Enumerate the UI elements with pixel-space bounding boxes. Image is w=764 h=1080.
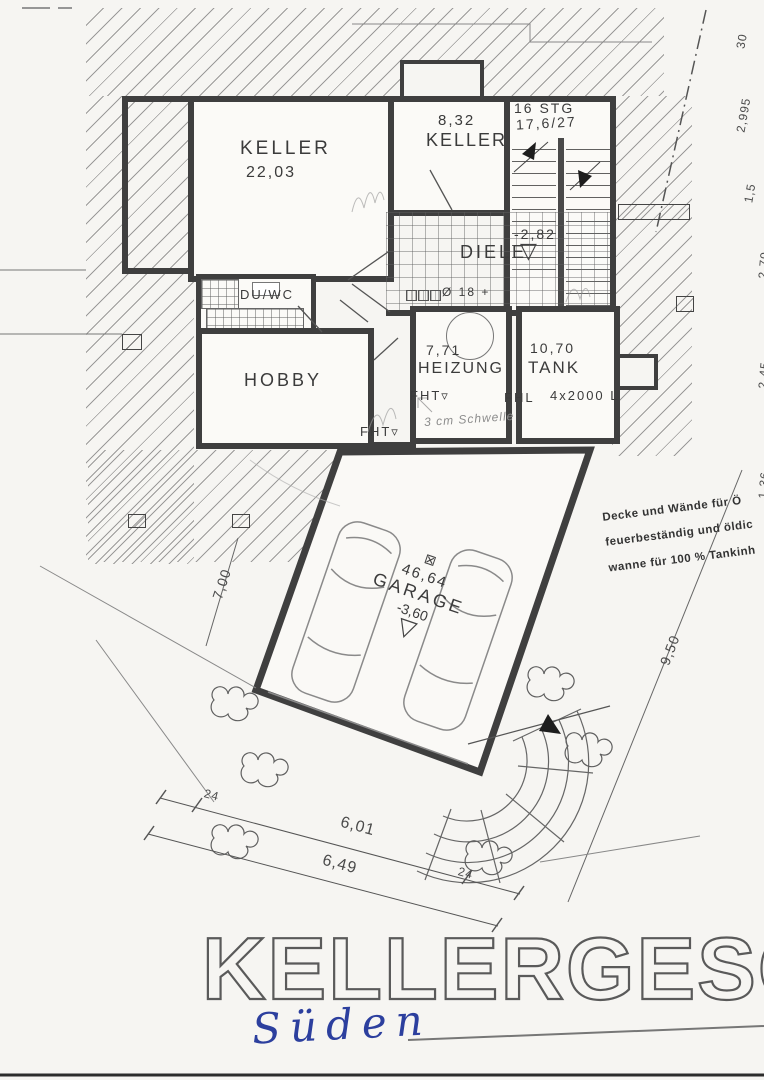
pier-3 [232,514,250,528]
edge-dim-270: 2,70 [756,251,764,279]
dim-24-right: 24 [456,864,474,881]
earth-hatch-right [612,96,692,456]
drive-line-2 [96,640,214,802]
heizung-name: HEIZUNG [418,360,504,378]
tank-name: TANK [528,358,580,378]
fht-label-heizung: FHT▿ [410,388,450,404]
fht-label-hobby: FHT▿ [360,424,400,440]
dim-601: 6,01 [338,814,377,840]
floorplan-scan: KELLER 22,03 8,32 KELLER 16 STG 17,6/27 … [0,0,764,1080]
duct-boxes [406,287,442,305]
wall-stub [618,204,690,220]
wall-hall-south [370,442,416,449]
fht-text: FHT [360,424,391,439]
fht-text: FHT [410,388,441,403]
shrub-sketches [211,667,612,875]
down-arrow-icon: ▿ [391,424,400,439]
shower-strip-tiles [206,308,304,330]
dim-700: 7,00 [209,567,234,602]
edge-dim-30: 30 [733,32,749,50]
earth-hatch-below-left [88,450,340,562]
room-outer-notch [122,96,196,274]
keller2-area: 8,32 [438,112,475,129]
stairs-riser-tread: 17,6/27 [516,113,577,132]
garage-door-line [268,692,468,764]
heizung-area: 7,71 [426,342,461,358]
down-arrow-icon: ▿ [441,388,450,403]
edge-dim-136: 1,36 [756,471,764,499]
keller1-area: 22,03 [246,164,296,182]
garden-stair [417,706,610,883]
hobby-name: HOBBY [244,370,322,391]
sueden-underline [408,1026,764,1040]
pier-4 [676,296,694,312]
tank-fill-niche [616,354,658,390]
duct-note: Ø 18 + [442,285,490,299]
dim-line-649 [148,834,498,926]
cross-line [540,836,700,862]
dim-24-left: 24 [202,786,220,803]
edge-dim-2995: 2,995 [734,97,754,134]
tank-room-note: Decke und Wände für Ö feuerbeständig und… [601,488,758,581]
shower-tiles [201,279,239,309]
diele-height-marker: ▽ [520,238,539,264]
edge-dim-15: 1,5 [741,182,758,204]
room-keller-large [188,96,394,282]
dim-950: 9,50 [657,633,683,668]
pier-2 [128,514,146,528]
tank-capacity: 4x2000 L [550,388,620,403]
tank-area: 10,70 [530,340,575,356]
diele-name: DIELE [460,242,527,263]
keller2-name: KELLER [426,130,507,151]
garage-label-group: ⊠ 46,64 GARAGE -3,60 ▽ [352,534,485,655]
light-well [400,60,484,100]
stair-direction-arrow [539,714,561,734]
dim-649: 6,49 [320,852,359,878]
keller1-name: KELLER [240,138,331,160]
duwc-name: DU/WC [240,287,294,302]
handwritten-orientation: Süden [251,995,433,1053]
fhl-label: FHL [504,390,535,405]
pier-1 [122,334,142,350]
earth-hatch-top [86,8,664,96]
edge-dim-245: 2,45 [756,361,764,389]
